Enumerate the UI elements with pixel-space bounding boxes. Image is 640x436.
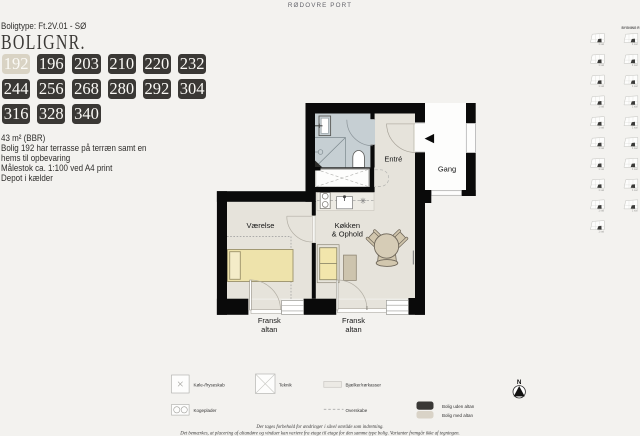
- svg-text:Der tages forbehold for ændrin: Der tages forbehold for ændringer i såve…: [255, 424, 383, 430]
- svg-text:Det bemærkes, at placering af: Det bemærkes, at placering af altandøre …: [179, 430, 460, 436]
